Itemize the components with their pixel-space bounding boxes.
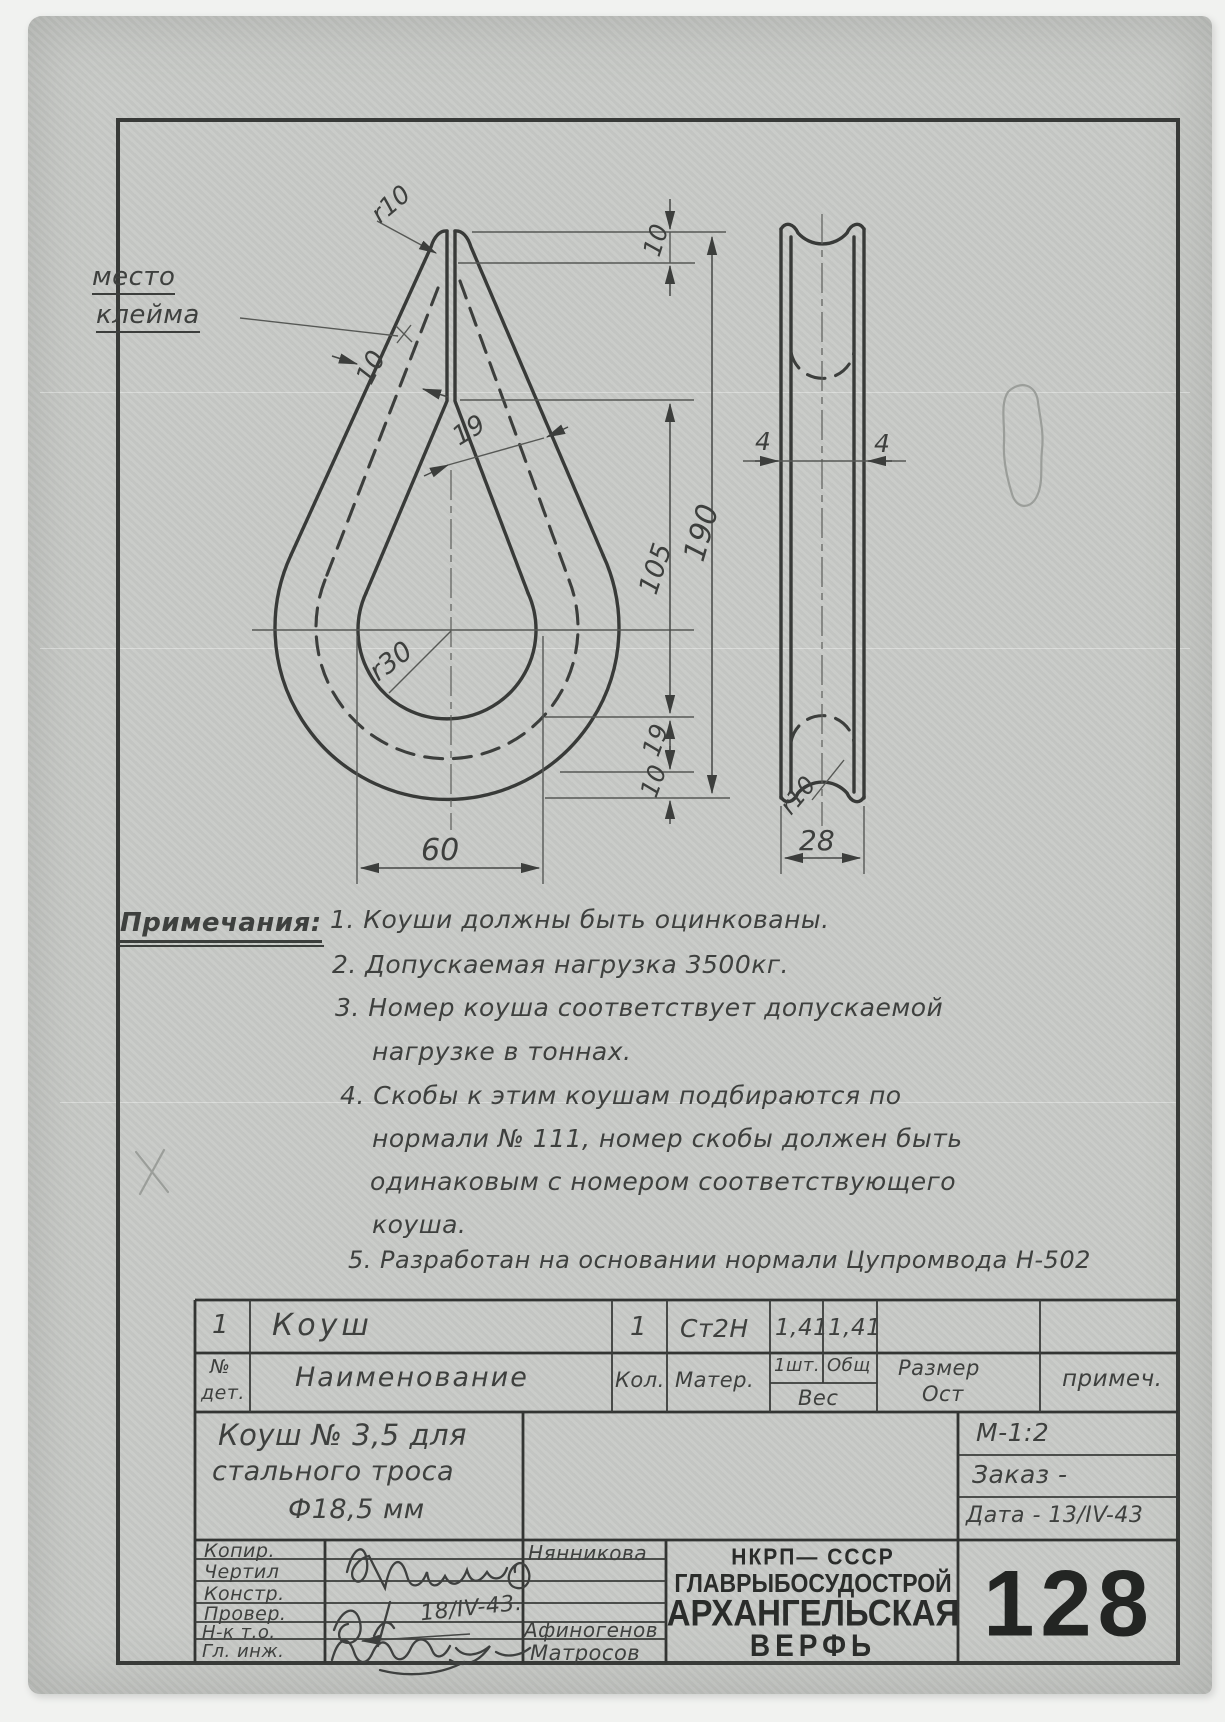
signature-chief — [332, 1640, 530, 1675]
order-value: Заказ - — [972, 1460, 1068, 1489]
dimensions: 10 105 19 10 190 10 — [240, 179, 906, 884]
dim-groove-19: 19 — [447, 409, 491, 452]
part-weight-total: 1,41 — [828, 1315, 881, 1341]
sign-label-dept-head: Н-к т.о. — [202, 1622, 276, 1643]
dim-flange-4-right: 4 — [874, 429, 890, 458]
note-line: 5. Разработан на основании нормали Цупро… — [348, 1246, 1091, 1274]
header-det-no-2: дет. — [201, 1382, 245, 1404]
drawing-title-line3: Ф18,5 мм — [288, 1494, 425, 1525]
note-line: одинаковым с номером соответствующего — [370, 1167, 956, 1196]
sign-label-drawn: Чертил — [204, 1561, 279, 1583]
pencil-blob — [1003, 385, 1042, 506]
header-size-2: Ост — [922, 1382, 964, 1406]
stamp-line4: ВЕРФЬ — [666, 1628, 960, 1664]
header-name: Наименование — [295, 1362, 529, 1393]
name-chief-engineer: Матросов — [530, 1641, 640, 1665]
notes-heading: Примечания: — [120, 908, 322, 943]
sheet-number: 128 — [960, 1551, 1178, 1658]
front-view — [252, 231, 694, 830]
part-qty: 1 — [630, 1312, 647, 1342]
header-qty: Кол. — [615, 1368, 665, 1392]
part-material: Ст2Н — [680, 1314, 749, 1343]
date-value: Дата - 13/IV-43 — [966, 1503, 1143, 1528]
sign-label-copier: Копир. — [204, 1540, 275, 1562]
stamp-callout-line2: клейма — [96, 300, 200, 333]
dim-width-28: 28 — [799, 824, 835, 857]
sign-label-chief-engineer: Гл. инж. — [202, 1641, 284, 1662]
header-size-1: Размер — [898, 1356, 980, 1380]
signature-copier — [347, 1549, 529, 1588]
note-line: нормали № 111, номер скобы должен быть — [372, 1124, 963, 1153]
note-line: 1. Коуши должны быть оцинкованы. — [330, 905, 830, 934]
note-line: нагрузке в тоннах. — [372, 1037, 631, 1066]
part-name: Коуш — [272, 1308, 373, 1343]
part-number: 1 — [212, 1310, 229, 1340]
note-line: 3. Номер коуша соответствует допускаемой — [335, 993, 943, 1022]
dim-flange-4-left: 4 — [755, 427, 771, 456]
header-weight: Вес — [798, 1386, 838, 1410]
name-dept-head: Афиногенов — [524, 1618, 658, 1642]
dim-thickness-10: 10 — [351, 346, 393, 389]
pencil-marks — [136, 385, 1043, 1194]
name-copier: Нянникова — [528, 1541, 647, 1565]
scale-value: М-1:2 — [976, 1418, 1049, 1447]
drawing-title-line2: стального троса — [212, 1456, 454, 1487]
scanned-blueprint: 10 105 19 10 190 10 — [0, 0, 1225, 1722]
dim-low-10: 10 — [634, 761, 672, 801]
sign-label-designer: Констр. — [204, 1583, 285, 1605]
pencil-x-mark — [136, 1150, 168, 1194]
drawing-title-line1: Коуш № 3,5 для — [218, 1418, 467, 1452]
note-line: 4. Скобы к этим коушам подбираются по — [340, 1081, 902, 1110]
dim-width-60: 60 — [421, 833, 459, 868]
dim-apex-radius: r10 — [365, 179, 416, 228]
note-line: 2. Допускаемая нагрузка 3500кг. — [332, 950, 789, 979]
header-note: примеч. — [1062, 1366, 1163, 1392]
side-view — [781, 214, 864, 826]
header-material: Матер. — [675, 1368, 754, 1392]
header-weight-total: Общ — [827, 1355, 871, 1376]
header-weight-each: 1шт. — [774, 1355, 820, 1376]
header-det-no-1: № — [210, 1356, 230, 1378]
dim-top-10: 10 — [637, 221, 674, 260]
dim-low-19: 19 — [636, 720, 674, 760]
part-weight-each: 1,41 — [775, 1315, 828, 1341]
note-line: коуша. — [372, 1210, 466, 1239]
dim-height-190: 190 — [677, 501, 726, 566]
dim-height-105: 105 — [633, 540, 678, 599]
stamp-callout-line1: место — [92, 262, 175, 295]
callout-leader — [240, 318, 398, 336]
stamp-place-x-mark — [396, 325, 412, 343]
